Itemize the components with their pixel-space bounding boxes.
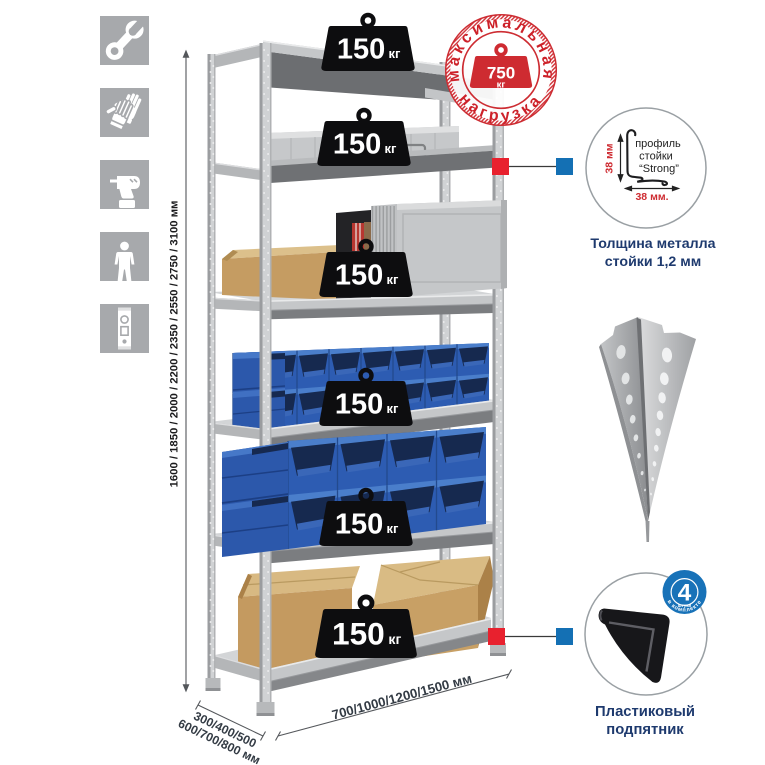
svg-text:кг: кг	[497, 80, 506, 91]
svg-text:“Strong”: “Strong”	[639, 163, 679, 175]
svg-text:стойки 1,2 мм: стойки 1,2 мм	[605, 254, 701, 270]
svg-text:38 мм.: 38 мм.	[635, 191, 668, 203]
svg-text:Толщина металла: Толщина металла	[590, 236, 715, 252]
svg-text:1600 / 1850 / 2000 / 2200 / 23: 1600 / 1850 / 2000 / 2200 / 2350 / 2550 …	[169, 201, 181, 488]
svg-text:стойки: стойки	[639, 151, 673, 163]
svg-text:700/1000/1200/1500 мм: 700/1000/1200/1500 мм	[330, 671, 473, 723]
svg-text:38 мм: 38 мм	[604, 143, 616, 173]
svg-text:профиль: профиль	[635, 138, 681, 150]
svg-text:подпятник: подпятник	[606, 722, 684, 738]
svg-text:Пластиковый: Пластиковый	[595, 704, 695, 720]
